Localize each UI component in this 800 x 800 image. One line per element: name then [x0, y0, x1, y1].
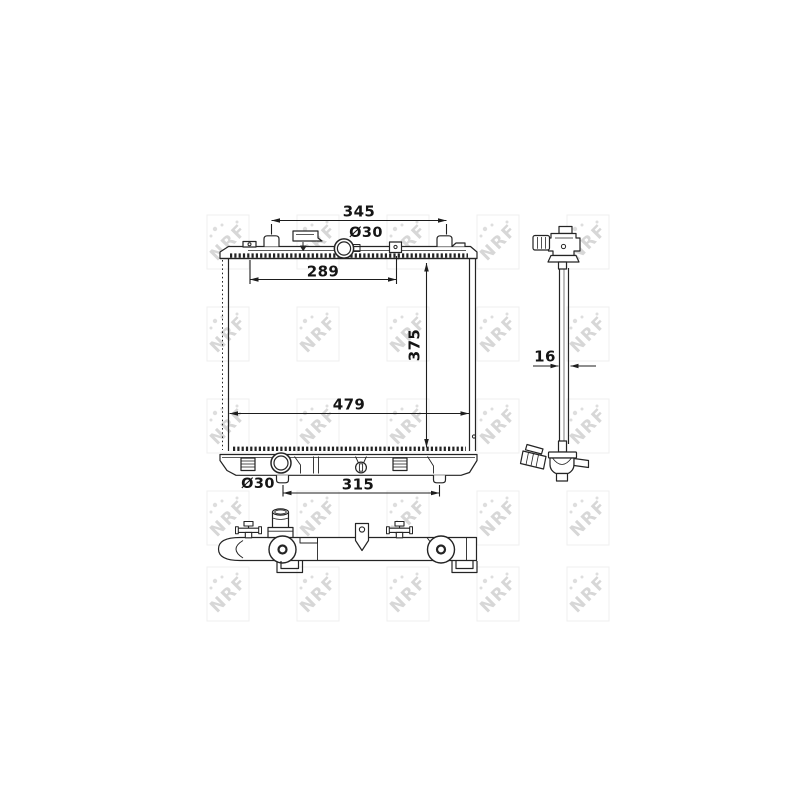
nrf-watermark-tile: NRF	[296, 307, 341, 361]
nrf-watermark-tile: NRF	[206, 567, 251, 621]
nrf-watermark-tile: NRF	[296, 567, 341, 621]
dimension-core-depth: 16	[534, 350, 556, 365]
dimension-overall-width: 479	[333, 398, 366, 413]
nrf-watermark-text: NRF	[566, 404, 611, 449]
radiator-front-view	[220, 231, 477, 483]
nrf-watermark-tile: NRF	[476, 567, 521, 621]
nrf-watermark-text: NRF	[386, 404, 431, 449]
nrf-watermark-tile: NRF	[476, 215, 521, 269]
nrf-watermark-text: NRF	[296, 572, 341, 617]
bottom-view-pipe	[268, 509, 293, 538]
radiator-technical-drawing: NRFNRFNRFNRFNRFNRFNRFNRFNRFNRFNRFNRFNRFN…	[0, 0, 800, 800]
dimension-lower-mount-span: 315	[342, 478, 375, 493]
nrf-watermark-text: NRF	[476, 404, 521, 449]
nrf-watermark-text: NRF	[296, 496, 341, 541]
nrf-watermark-text: NRF	[476, 496, 521, 541]
nrf-watermark-text: NRF	[296, 312, 341, 357]
nrf-watermark-text: NRF	[206, 572, 251, 617]
radiator-bottom-view	[219, 509, 478, 573]
nrf-watermark-tile: NRF	[476, 307, 521, 361]
nrf-watermark-text: NRF	[476, 572, 521, 617]
nrf-watermark-tile: NRF	[566, 567, 611, 621]
nrf-watermark-tile: NRF	[566, 399, 611, 453]
side-view-filler-neck	[533, 227, 580, 270]
nrf-watermark-text: NRF	[206, 496, 251, 541]
dimension-top-mount-span: 345	[343, 205, 376, 220]
front-core	[223, 259, 476, 452]
nrf-watermark-tile: NRF	[566, 491, 611, 545]
dimension-upper-bracket-span: 289	[307, 265, 340, 280]
bottom-view-drain-valve-left	[236, 522, 262, 538]
nrf-watermark-tile: NRF	[566, 307, 611, 361]
nrf-watermark-text: NRF	[476, 312, 521, 357]
nrf-watermark-tile: NRF	[476, 399, 521, 453]
nrf-watermark-text: NRF	[386, 496, 431, 541]
nrf-watermark-text: NRF	[476, 220, 521, 265]
nrf-watermark-text: NRF	[566, 572, 611, 617]
dimension-core-height: 375	[408, 329, 423, 362]
nrf-watermark-tile: NRF	[386, 399, 431, 453]
nrf-watermark-tile: NRF	[476, 491, 521, 545]
nrf-watermark-tile: NRF	[386, 567, 431, 621]
nrf-watermark-text: NRF	[566, 496, 611, 541]
dimension-filler-diameter: Ø30	[349, 226, 383, 241]
nrf-watermark-text: NRF	[566, 312, 611, 357]
nrf-watermark-text: NRF	[386, 572, 431, 617]
dimension-outlet-diameter: Ø30	[241, 477, 275, 492]
technical-drawing-canvas: NRFNRFNRFNRFNRFNRFNRFNRFNRFNRFNRFNRFNRFN…	[0, 0, 800, 800]
